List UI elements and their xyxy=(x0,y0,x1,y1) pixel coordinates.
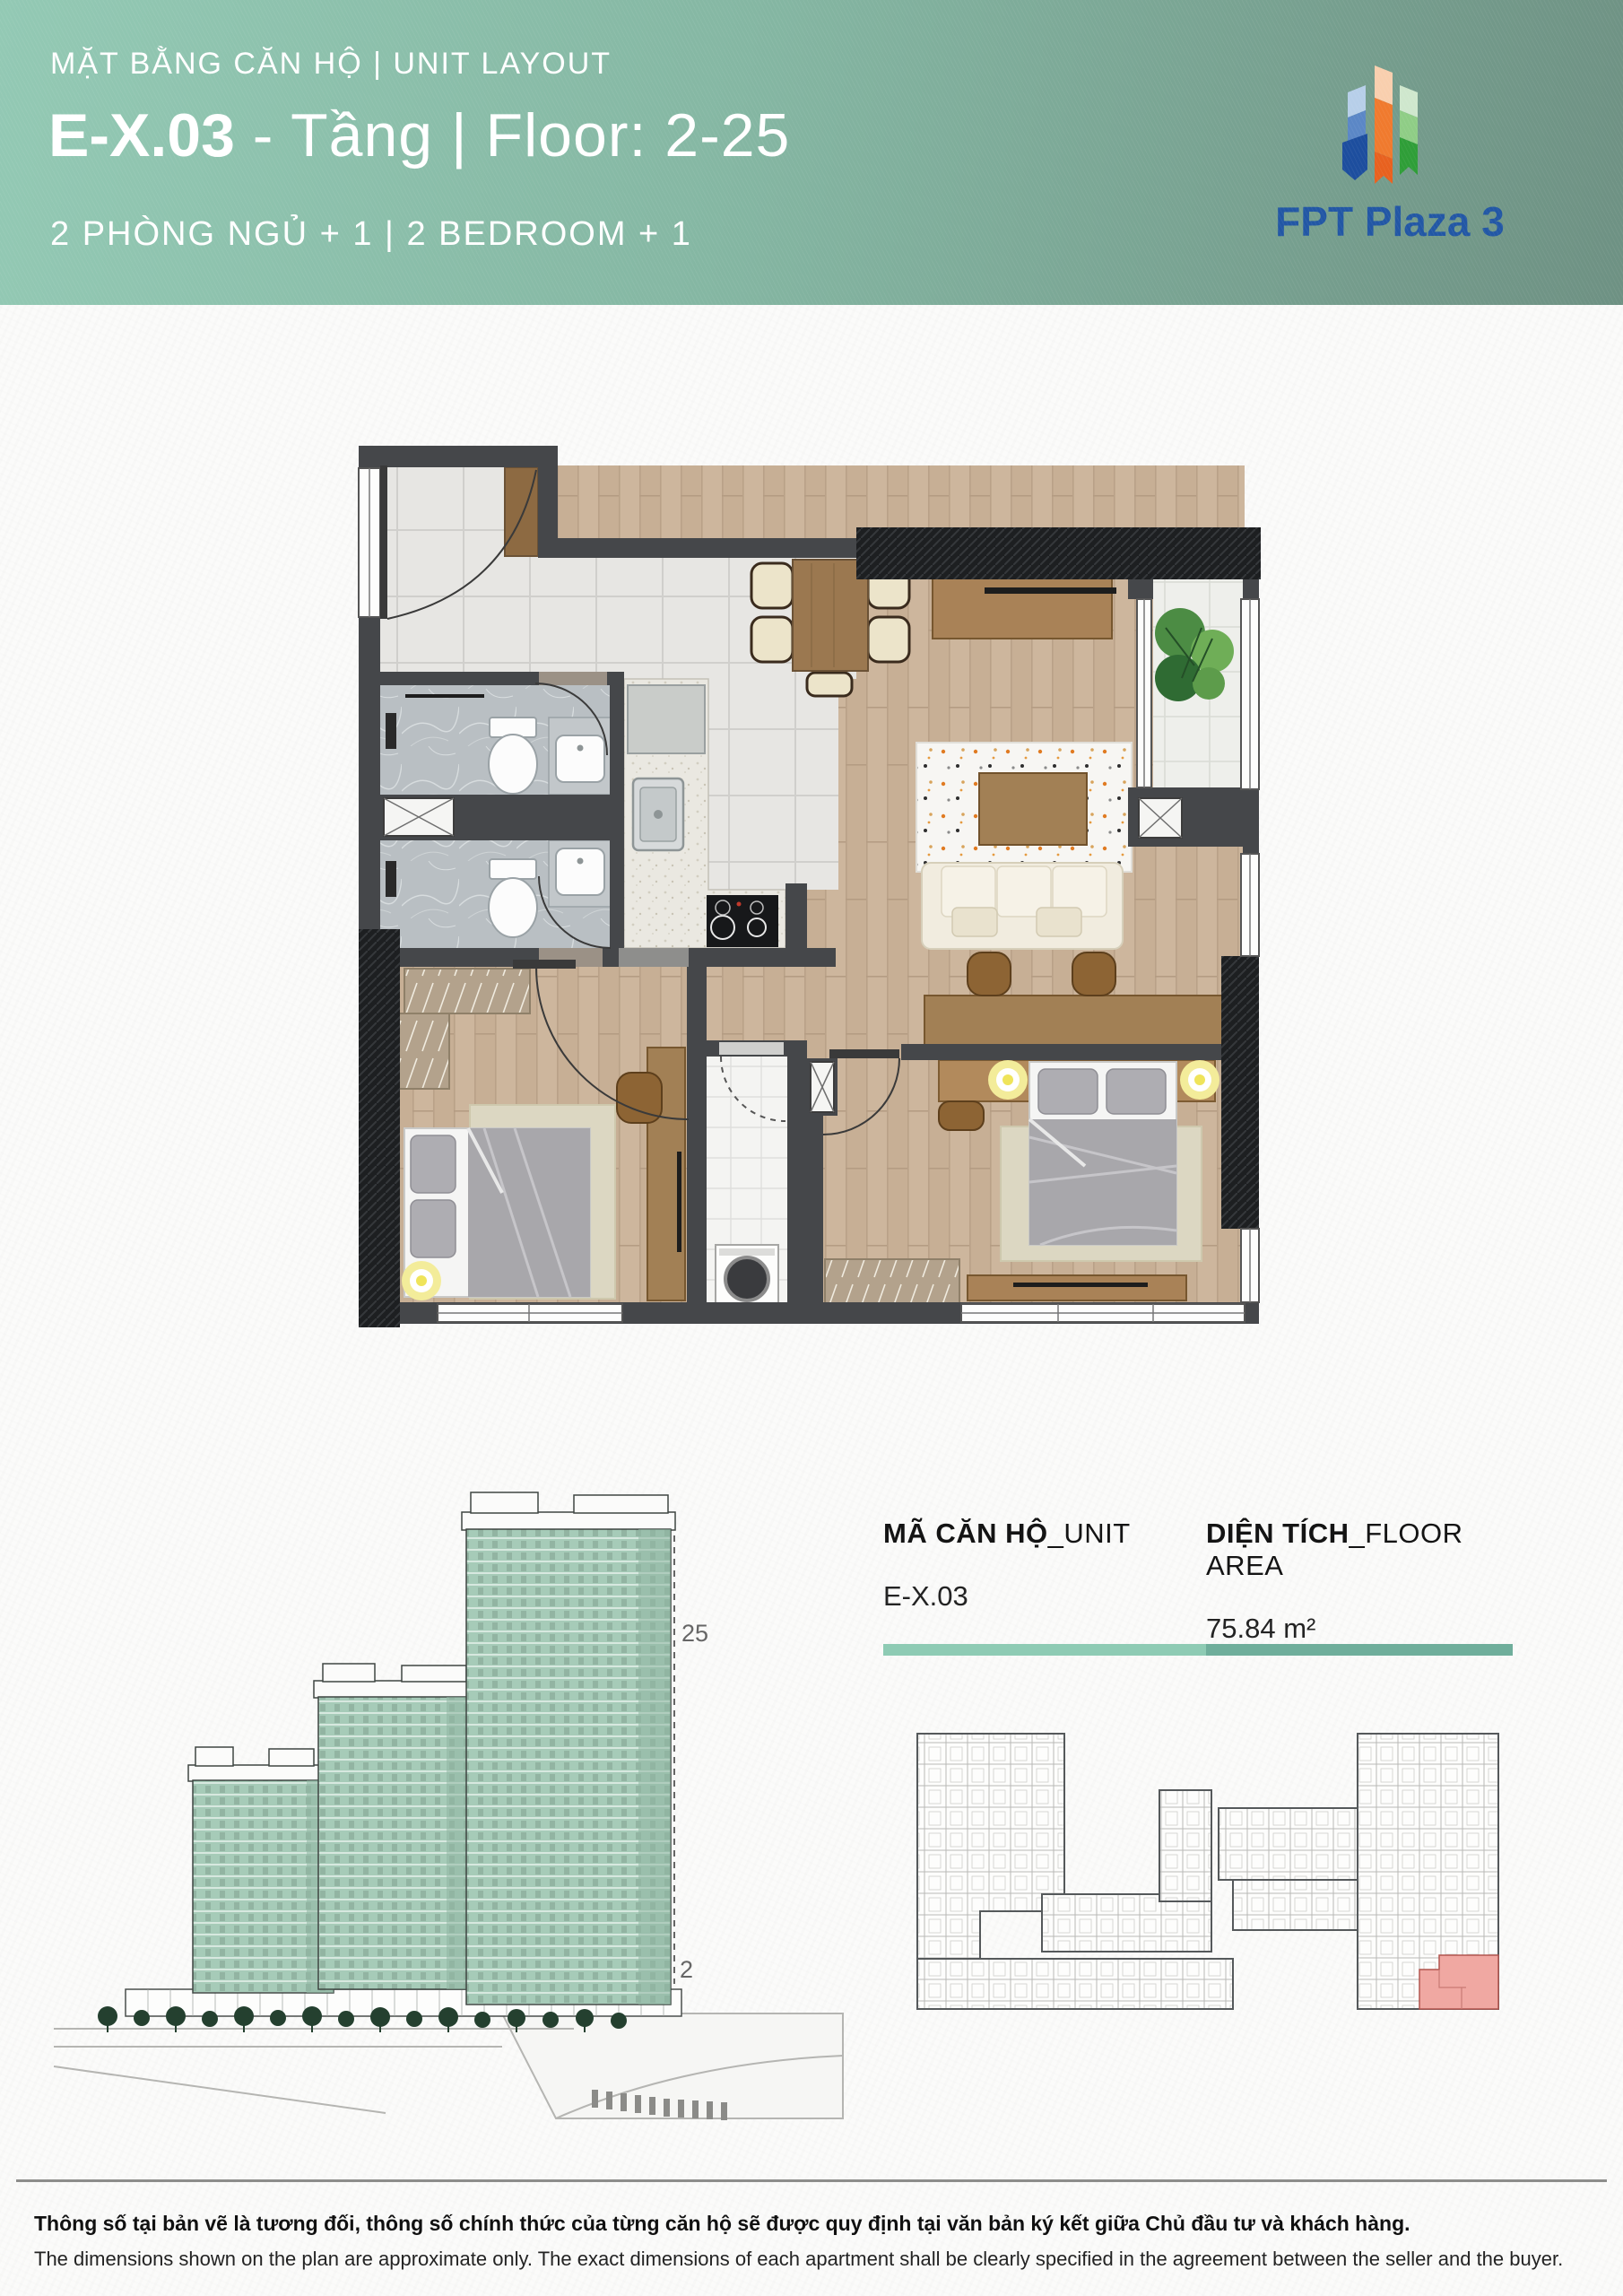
keyplan-mid-low-block xyxy=(1042,1894,1211,1952)
tv xyxy=(985,587,1116,594)
accent-bar-light xyxy=(883,1644,1206,1656)
top-floor-label: 25 xyxy=(681,1620,708,1647)
fridge xyxy=(628,685,705,753)
keyplan-center-low-block xyxy=(1233,1880,1373,1930)
towers xyxy=(188,1492,675,2005)
laundry xyxy=(716,1245,778,1304)
header-banner: MẶT BẰNG CĂN HỘ | UNIT LAYOUT E-X.03 - T… xyxy=(0,0,1623,305)
floor-area-value: 75.84 m² xyxy=(1206,1613,1529,1645)
footer-divider xyxy=(16,2179,1607,2182)
disclaimer-vietnamese: Thông số tại bản vẽ là tương đối, thông … xyxy=(34,2212,1410,2236)
accent-bar-dark xyxy=(1206,1644,1513,1656)
brochure-page: MẶT BẰNG CĂN HỘ | UNIT LAYOUT E-X.03 - T… xyxy=(0,0,1623,2296)
wardrobe xyxy=(404,969,530,1013)
basin xyxy=(556,848,604,895)
double-bed xyxy=(1029,1062,1176,1245)
low-console xyxy=(968,1275,1186,1300)
living-room xyxy=(916,578,1132,949)
key-plan xyxy=(901,1726,1520,2018)
tower-left xyxy=(188,1747,338,1993)
unit-floor-plan xyxy=(355,438,1264,1335)
floor-range-marker: 25 2 xyxy=(674,1535,708,1984)
fpt-plaza-logo-icon xyxy=(1255,54,1524,197)
logo-text: FPT Plaza 3 xyxy=(1255,197,1524,246)
keyplan-center-block xyxy=(1219,1808,1373,1880)
tower-middle xyxy=(314,1664,478,1989)
unit-code-value: E-X.03 xyxy=(883,1580,1204,1613)
bedroom-line: 2 PHÒNG NGỦ + 1 | 2 BEDROOM + 1 xyxy=(50,215,692,254)
desk-chair xyxy=(968,952,1011,996)
page-subtitle: MẶT BẰNG CĂN HỘ | UNIT LAYOUT xyxy=(50,47,612,82)
tower-right xyxy=(462,1492,675,2005)
coffee-table xyxy=(979,773,1087,845)
balcony-glazing xyxy=(1137,599,1151,787)
title-rest: - Tầng | Floor: 2-25 xyxy=(235,101,790,170)
sofa xyxy=(922,863,1123,949)
desk-chair xyxy=(1072,952,1115,996)
keyplan-bottom-wing xyxy=(917,1959,1233,2009)
wardrobe xyxy=(399,1013,449,1089)
bottom-floor-label: 2 xyxy=(680,1956,693,1983)
floor-area-label: DIỆN TÍCH_FLOOR AREA xyxy=(1206,1518,1529,1582)
page-title: E-X.03 - Tầng | Floor: 2-25 xyxy=(48,100,790,170)
cooktop xyxy=(707,895,778,947)
unit-code-label: MÃ CĂN HỘ_UNIT xyxy=(883,1518,1204,1550)
floor-area-block: DIỆN TÍCH_FLOOR AREA 75.84 m² xyxy=(1206,1518,1529,1645)
unit-code-block: MÃ CĂN HỘ_UNIT E-X.03 xyxy=(883,1518,1204,1613)
wardrobe xyxy=(825,1259,959,1308)
keyplan-mid-upper-block xyxy=(1159,1790,1211,1901)
disclaimer-english: The dimensions shown on the plan are app… xyxy=(34,2248,1563,2271)
study-desk xyxy=(924,996,1224,1046)
toilet xyxy=(489,878,537,937)
unit-code: E-X.03 xyxy=(48,101,235,170)
basin xyxy=(556,735,604,782)
fpt-plaza-logo: FPT Plaza 3 xyxy=(1255,54,1524,260)
building-rendering: 25 2 xyxy=(49,1475,847,2121)
toilet xyxy=(489,735,537,794)
